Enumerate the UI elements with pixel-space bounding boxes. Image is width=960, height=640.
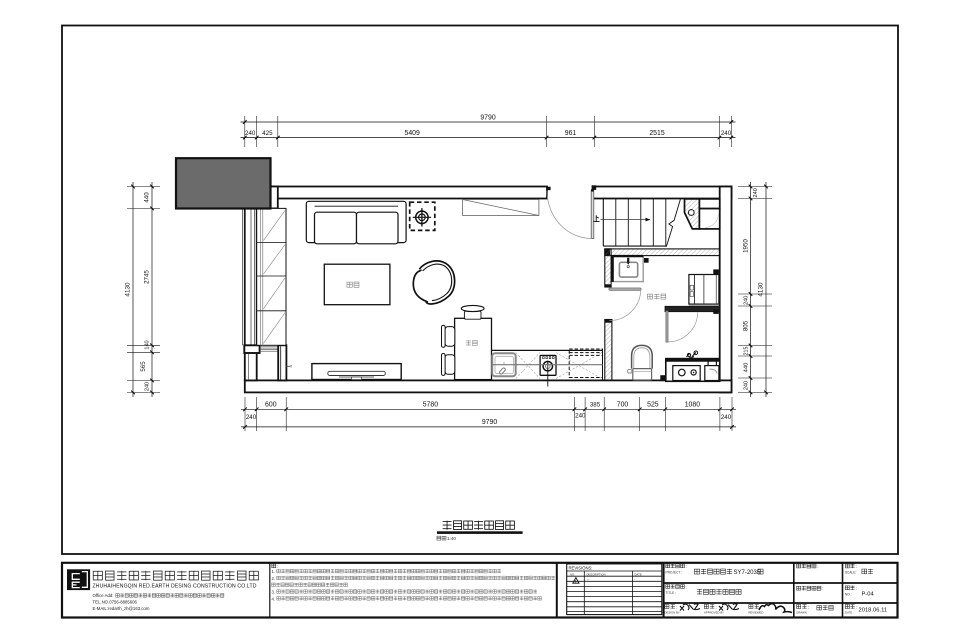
svg-text::: : — [686, 584, 687, 589]
svg-text:600: 600 — [265, 402, 277, 409]
svg-text:1950: 1950 — [742, 239, 749, 253]
svg-text:525: 525 — [647, 402, 659, 409]
svg-text::: : — [856, 605, 857, 610]
svg-text:240: 240 — [721, 414, 732, 421]
svg-text:--: -- — [587, 578, 589, 582]
svg-text:1: 1 — [575, 580, 577, 584]
svg-text:4130: 4130 — [758, 282, 765, 297]
svg-text:240: 240 — [145, 382, 151, 391]
svg-text::: : — [856, 564, 857, 569]
svg-text::: : — [686, 564, 687, 569]
svg-text:240: 240 — [743, 296, 749, 305]
svg-text:-: - — [634, 578, 635, 582]
svg-text:REVIEWED: REVIEWED — [749, 611, 764, 615]
svg-text:240: 240 — [721, 130, 732, 137]
svg-text:ZHUHAIHENGQIN RED.EARTH DESING: ZHUHAIHENGQIN RED.EARTH DESING CONSTRUCT… — [93, 584, 257, 590]
svg-text:PROJECT :: PROJECT : — [666, 571, 683, 575]
svg-text:DRAWN: DRAWN — [796, 611, 806, 615]
svg-text:2515: 2515 — [649, 130, 664, 137]
svg-text:5780: 5780 — [423, 402, 438, 409]
svg-text:9790: 9790 — [480, 115, 495, 122]
svg-text:2745: 2745 — [144, 270, 151, 284]
svg-text:P-04: P-04 — [862, 592, 875, 598]
svg-text:240: 240 — [575, 413, 586, 420]
svg-text:1080: 1080 — [685, 402, 700, 409]
svg-text:TITLE :: TITLE : — [666, 591, 677, 595]
svg-text:DESCRIPTION: DESCRIPTION — [587, 572, 606, 576]
svg-text:700: 700 — [617, 402, 629, 409]
svg-text:140: 140 — [145, 340, 151, 349]
svg-text:9790: 9790 — [482, 419, 497, 426]
svg-text:DATE: DATE — [845, 611, 852, 615]
svg-text:5409: 5409 — [405, 130, 420, 137]
svg-text:E-MAIL:redarth_zh@163.com: E-MAIL:redarth_zh@163.com — [93, 606, 150, 611]
svg-text:805: 805 — [742, 320, 749, 331]
svg-text:4.: 4. — [272, 596, 276, 601]
svg-text:SY7-2035: SY7-2035 — [734, 570, 761, 576]
svg-text:440: 440 — [144, 192, 151, 203]
svg-text:565: 565 — [140, 361, 147, 372]
svg-text:240: 240 — [245, 130, 256, 137]
svg-text::: : — [808, 606, 809, 611]
svg-text:385: 385 — [590, 402, 601, 409]
svg-text::: : — [817, 564, 818, 569]
svg-text:240: 240 — [753, 188, 759, 197]
svg-text:1.: 1. — [272, 569, 276, 574]
svg-text:3.: 3. — [272, 590, 276, 595]
svg-text::: : — [822, 586, 823, 591]
svg-text:Office Add:: Office Add: — [93, 593, 114, 598]
svg-text:DESIGN BY: DESIGN BY — [665, 611, 680, 615]
svg-text::: : — [856, 586, 857, 591]
svg-text:NO.:: NO.: — [845, 592, 852, 596]
svg-text:1:40: 1:40 — [447, 536, 456, 541]
svg-text:425: 425 — [262, 130, 273, 137]
svg-text:240: 240 — [246, 414, 257, 421]
svg-text:215: 215 — [743, 347, 749, 356]
svg-text::: : — [277, 564, 278, 569]
svg-text:NO.: NO. — [570, 572, 575, 576]
svg-text:961: 961 — [565, 130, 577, 137]
svg-text:DATE: DATE — [635, 572, 642, 576]
svg-text:SCALE:: SCALE: — [845, 571, 856, 575]
svg-text:TEL.NO.0756-8885606: TEL.NO.0756-8885606 — [93, 600, 138, 605]
svg-text:2.: 2. — [272, 576, 276, 581]
svg-text:4130: 4130 — [125, 282, 132, 297]
svg-text:240: 240 — [743, 381, 749, 390]
svg-text:APPROVED BY: APPROVED BY — [704, 611, 724, 615]
svg-text:2018.06.11: 2018.06.11 — [859, 607, 888, 613]
svg-text:REVISIONS:: REVISIONS: — [569, 565, 593, 570]
svg-text:440: 440 — [743, 363, 749, 373]
